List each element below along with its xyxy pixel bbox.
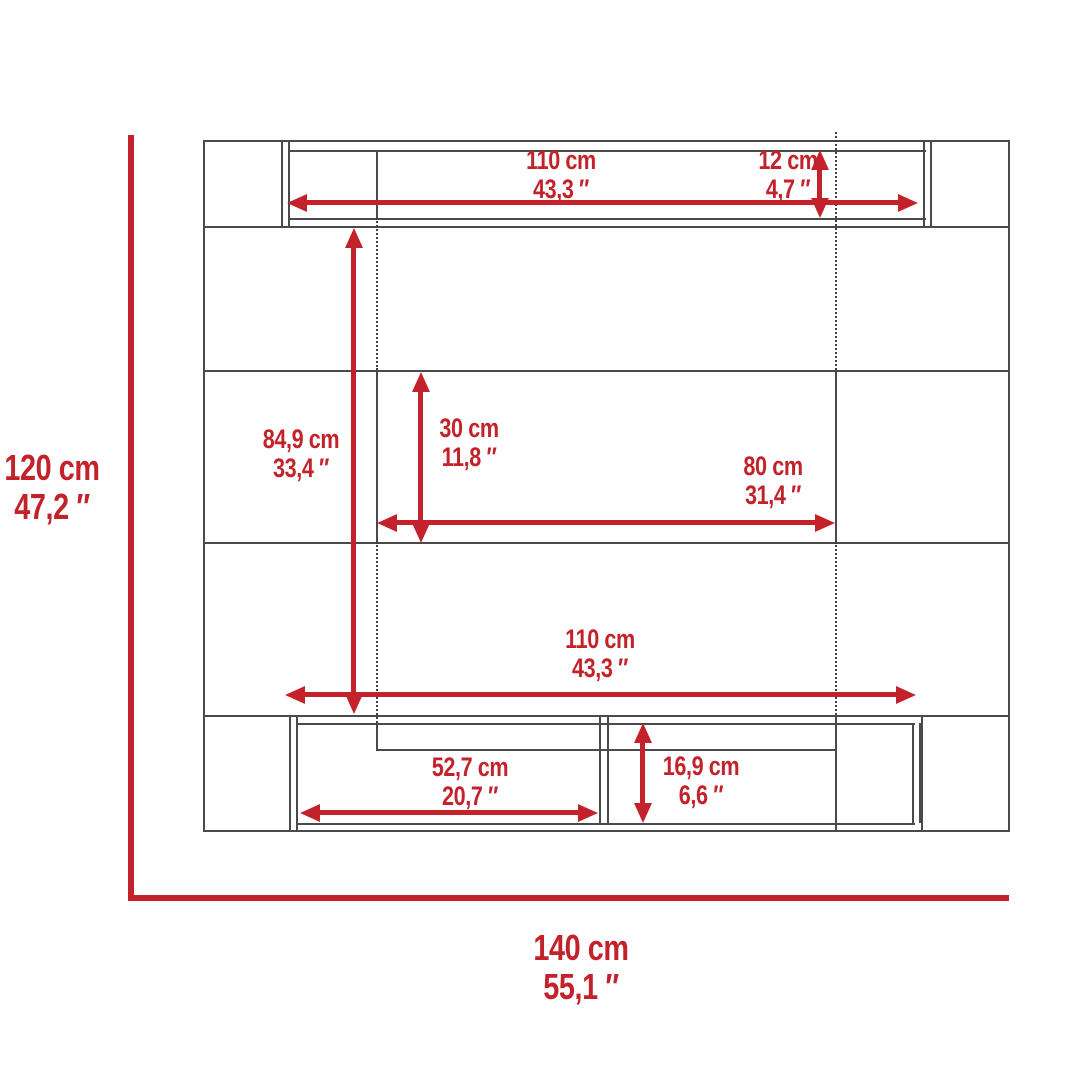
structure-line (288, 140, 290, 228)
dim-value-inch: 31,4 ″ (745, 481, 801, 510)
structure-line (835, 715, 837, 830)
structure-line (1008, 140, 1010, 832)
dim-label-cabinet-opening-height: 16,9 cm 6,6 ″ (663, 752, 739, 810)
overall-dimension-bracket-horizontal (128, 895, 1009, 901)
structure-line (203, 140, 205, 832)
dim-value-cm: 30 cm (439, 414, 498, 443)
structure-line (296, 723, 915, 725)
dim-value-cm: 110 cm (565, 625, 635, 654)
structure-line (296, 715, 298, 830)
dim-value-inch: 43,3 ″ (572, 654, 628, 683)
structure-line (203, 370, 1010, 372)
dim-value-inch: 4,7 ″ (766, 175, 810, 204)
structure-line (607, 715, 609, 823)
structure-line (203, 542, 1010, 544)
structure-line (376, 749, 836, 751)
dim-arrow-cabinet-opening-height (634, 723, 652, 823)
structure-line (288, 218, 926, 220)
structure-line (376, 723, 378, 749)
dim-value-cm: 84,9 cm (263, 425, 339, 454)
dim-label-overall-width: 140 cm 55,1 ″ (533, 928, 628, 1006)
dim-value-cm: 12 cm (758, 146, 817, 175)
dim-label-top-shelf-width: 110 cm 43,3 ″ (526, 146, 596, 204)
structure-line (930, 140, 932, 228)
dim-label-lower-opening-width: 110 cm 43,3 ″ (565, 625, 635, 683)
dim-value-cm: 16,9 cm (663, 752, 739, 781)
dim-value-cm: 120 cm (4, 448, 99, 487)
dim-arrow-center-shelf-width (377, 514, 835, 532)
structure-line (203, 140, 1010, 142)
projection-line (835, 132, 837, 370)
dim-label-cabinet-compartment-width: 52,7 cm 20,7 ″ (432, 753, 508, 811)
structure-line (203, 226, 1010, 228)
dim-label-center-opening-height: 30 cm 11,8 ″ (439, 414, 498, 472)
dim-label-center-shelf-width: 80 cm 31,4 ″ (743, 452, 802, 510)
dim-value-cm: 52,7 cm (432, 753, 508, 782)
dim-value-inch: 11,8 ″ (442, 443, 497, 472)
dim-arrow-lower-opening-width (285, 686, 916, 704)
dim-value-inch: 47,2 ″ (14, 487, 89, 526)
structure-line (289, 715, 291, 830)
structure-line (296, 823, 915, 825)
structure-line (203, 830, 1010, 832)
dim-value-inch: 6,6 ″ (679, 781, 723, 810)
dim-label-top-shelf-height: 12 cm 4,7 ″ (758, 146, 817, 204)
structure-line (921, 715, 923, 830)
projection-line (376, 218, 378, 370)
dim-value-inch: 43,3 ″ (533, 175, 589, 204)
dim-value-inch: 55,1 ″ (543, 967, 618, 1006)
furniture-dimension-diagram: 110 cm 43,3 ″ 12 cm 4,7 ″ 120 cm 47,2 ″ … (0, 0, 1090, 1090)
dim-label-overall-height: 120 cm 47,2 ″ (4, 448, 99, 526)
structure-line (912, 723, 914, 823)
structure-line (288, 150, 926, 152)
structure-line (599, 715, 601, 823)
dim-value-inch: 33,4 ″ (273, 454, 329, 483)
structure-line (835, 370, 837, 542)
overall-dimension-bracket-vertical (128, 135, 134, 901)
dim-arrow-panel-height (345, 228, 363, 714)
dim-value-cm: 110 cm (526, 146, 596, 175)
structure-line (281, 140, 283, 228)
dim-value-inch: 20,7 ″ (442, 782, 498, 811)
dim-label-panel-height: 84,9 cm 33,4 ″ (263, 425, 339, 483)
dim-value-cm: 80 cm (743, 452, 802, 481)
dim-value-cm: 140 cm (533, 928, 628, 967)
structure-line (923, 140, 925, 228)
